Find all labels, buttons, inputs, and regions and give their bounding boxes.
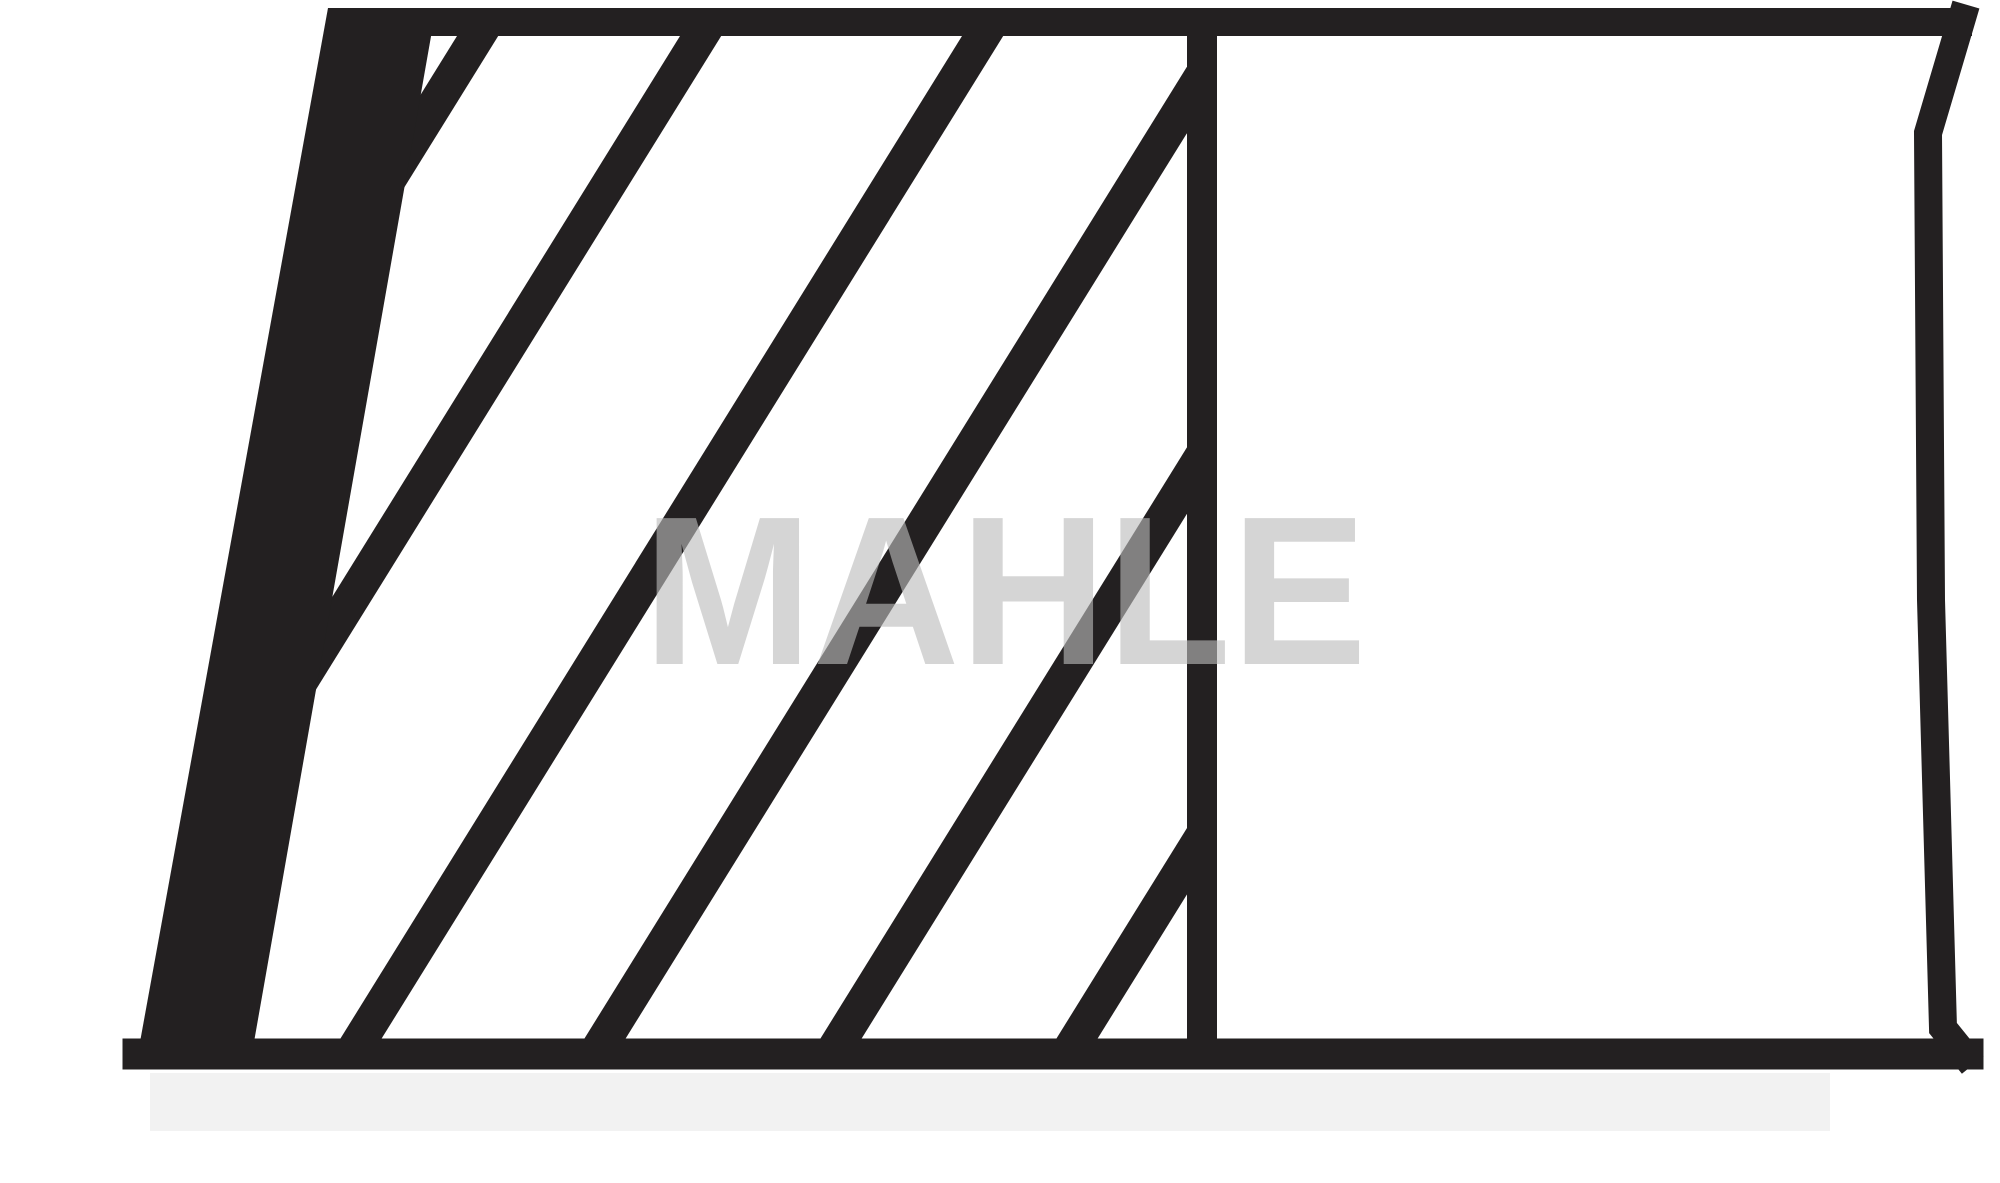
scan-shadow	[150, 1073, 1830, 1131]
ring-cross-section-diagram: MAHLE	[0, 0, 2000, 1183]
mahle-watermark: MAHLE	[643, 472, 1367, 709]
right-edge	[1928, 18, 1964, 1054]
scanned-part-drawing-page: MAHLE	[0, 0, 2000, 1183]
